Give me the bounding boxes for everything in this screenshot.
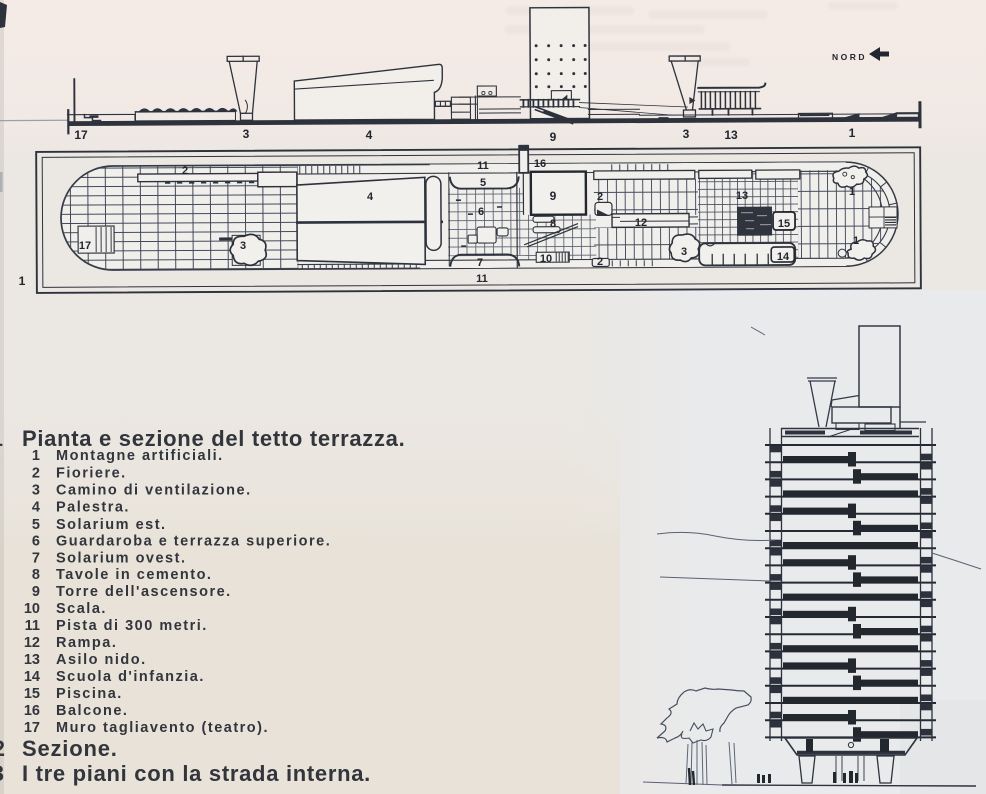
svg-text:3: 3	[240, 240, 246, 252]
svg-text:15: 15	[24, 686, 40, 702]
svg-text:2: 2	[32, 466, 40, 482]
svg-text:1: 1	[32, 448, 40, 464]
svg-text:5: 5	[32, 517, 40, 533]
svg-text:Scuola d'infanzia.: Scuola d'infanzia.	[56, 669, 205, 685]
svg-text:3: 3	[683, 127, 690, 141]
svg-text:17: 17	[79, 240, 91, 252]
svg-text:1: 1	[849, 186, 855, 198]
svg-text:8: 8	[550, 218, 556, 230]
svg-text:7: 7	[32, 550, 40, 566]
svg-text:8: 8	[32, 567, 40, 583]
svg-text:Pista di 300 metri.: Pista di 300 metri.	[56, 618, 208, 634]
svg-text:4: 4	[366, 128, 373, 142]
svg-text:16: 16	[24, 703, 40, 719]
svg-text:5: 5	[480, 177, 486, 189]
svg-text:14: 14	[24, 669, 40, 685]
svg-text:4: 4	[367, 191, 374, 203]
svg-text:1: 1	[19, 274, 26, 288]
svg-text:NORD: NORD	[832, 52, 867, 62]
svg-text:I tre piani con la strada inte: I tre piani con la strada interna.	[22, 761, 371, 786]
svg-text:13: 13	[724, 128, 738, 142]
svg-text:Torre dell'ascensore.: Torre dell'ascensore.	[56, 584, 232, 600]
svg-text:10: 10	[24, 601, 40, 617]
svg-text:Palestra.: Palestra.	[56, 500, 130, 516]
svg-text:Sezione.: Sezione.	[22, 736, 118, 761]
svg-text:Fioriere.: Fioriere.	[56, 466, 127, 482]
svg-text:Solarium ovest.: Solarium ovest.	[56, 550, 186, 566]
svg-text:Montagne artificiali.: Montagne artificiali.	[56, 448, 224, 464]
svg-text:16: 16	[534, 158, 546, 170]
svg-text:2: 2	[597, 191, 603, 203]
svg-text:3: 3	[0, 761, 4, 786]
svg-text:2: 2	[0, 736, 5, 761]
svg-text:9: 9	[550, 189, 557, 203]
svg-text:Piscina.: Piscina.	[56, 686, 123, 702]
svg-text:Rampa.: Rampa.	[56, 635, 117, 651]
svg-text:Solarium est.: Solarium est.	[56, 517, 167, 533]
svg-text:1: 1	[0, 426, 3, 451]
svg-text:6: 6	[32, 533, 40, 549]
svg-text:13: 13	[736, 190, 748, 202]
svg-text:7: 7	[477, 257, 483, 269]
svg-text:10: 10	[540, 253, 552, 265]
svg-text:Scala.: Scala.	[56, 601, 107, 617]
svg-text:9: 9	[550, 130, 557, 144]
svg-text:6: 6	[478, 206, 484, 218]
svg-text:4: 4	[32, 500, 40, 516]
svg-text:13: 13	[24, 652, 40, 668]
svg-text:17: 17	[74, 128, 88, 142]
svg-text:11: 11	[476, 273, 488, 285]
svg-text:2: 2	[182, 165, 188, 177]
svg-text:3: 3	[681, 246, 687, 258]
svg-text:1: 1	[849, 126, 856, 140]
svg-text:12: 12	[635, 217, 647, 229]
svg-text:17: 17	[24, 720, 40, 736]
svg-text:2: 2	[597, 256, 603, 268]
svg-text:Asilo nido.: Asilo nido.	[56, 652, 147, 668]
svg-text:1: 1	[853, 235, 859, 247]
svg-text:Guardaroba e terrazza superior: Guardaroba e terrazza superiore.	[56, 533, 331, 549]
svg-text:11: 11	[25, 618, 40, 634]
svg-text:Camino di ventilazione.: Camino di ventilazione.	[56, 483, 252, 499]
svg-text:Tavole in cemento.: Tavole in cemento.	[56, 567, 212, 583]
svg-text:14: 14	[777, 251, 790, 263]
svg-text:3: 3	[32, 483, 40, 499]
svg-text:11: 11	[477, 160, 489, 172]
svg-text:Balcone.: Balcone.	[56, 703, 128, 719]
svg-text:3: 3	[243, 127, 250, 141]
svg-text:9: 9	[32, 584, 40, 600]
svg-text:Muro tagliavento (teatro).: Muro tagliavento (teatro).	[56, 720, 269, 736]
svg-text:12: 12	[24, 635, 40, 651]
svg-text:15: 15	[778, 218, 790, 230]
